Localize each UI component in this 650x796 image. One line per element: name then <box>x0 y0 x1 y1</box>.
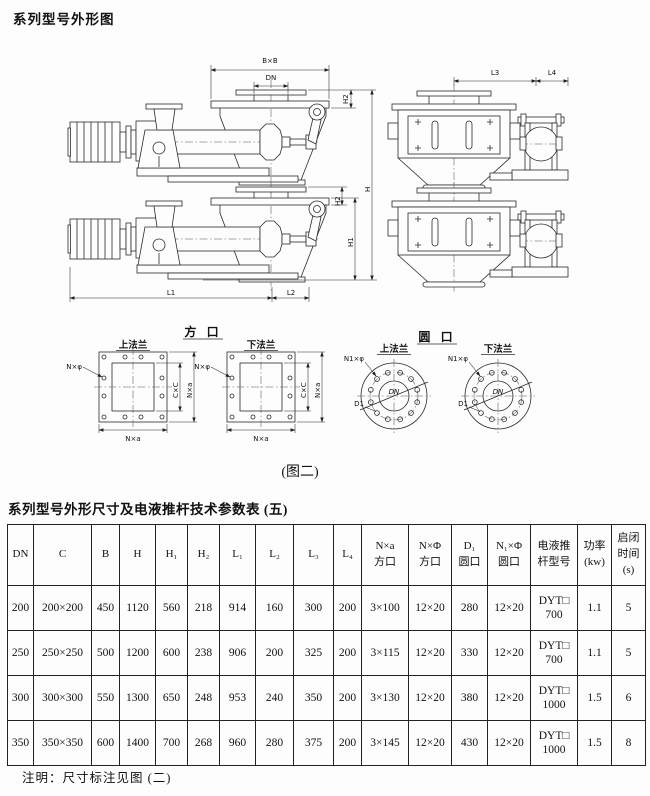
column-header: H₁ <box>156 525 188 586</box>
table-cell: 3×145 <box>362 721 409 766</box>
column-header: N×a 方口 <box>362 525 409 586</box>
table-cell: 238 <box>188 631 220 676</box>
dim-label-d1: D1 <box>458 400 468 408</box>
table-cell: 280 <box>452 586 488 631</box>
table-cell: 12×20 <box>409 721 452 766</box>
lower-flange-label: 下法兰 <box>484 343 513 355</box>
dim-label-l3: L3 <box>491 69 499 77</box>
table-cell: 600 <box>92 721 120 766</box>
table-cell: 1.5 <box>578 676 612 721</box>
table-cell: 430 <box>452 721 488 766</box>
table-cell: 5 <box>612 631 646 676</box>
square-port-title: 方 口 <box>184 324 221 339</box>
column-header: N×Φ 方口 <box>409 525 452 586</box>
column-header: 功率 (kw) <box>578 525 612 586</box>
column-header: C <box>34 525 92 586</box>
table-cell: 1200 <box>120 631 156 676</box>
dim-label-l4: L4 <box>548 69 557 77</box>
dim-label-cxc: C×C <box>172 382 180 398</box>
table-cell: 12×20 <box>409 676 452 721</box>
front-view-upper <box>388 85 568 195</box>
table-cell: 12×20 <box>409 631 452 676</box>
table-cell: 350 <box>294 676 334 721</box>
table-cell: 1.1 <box>578 631 612 676</box>
side-view-lower <box>68 177 329 291</box>
table-cell: 200 <box>8 586 34 631</box>
parameters-table: DNCBHH₁H₂L₁L₂L₃L₄N×a 方口N×Φ 方口D₁ 圆口N₁×Φ 圆… <box>7 524 646 766</box>
dim-label-nxa: N×a <box>125 435 140 443</box>
document-page: 系列型号外形图 <box>0 0 650 796</box>
dim-label-nxa: N×a <box>186 383 194 398</box>
column-header: B <box>92 525 120 586</box>
column-header: D₁ 圆口 <box>452 525 488 586</box>
column-header: 电液推 杆型号 <box>531 525 578 586</box>
table-cell: 300 <box>294 586 334 631</box>
table-cell: 12×20 <box>488 586 531 631</box>
table-cell: 3×115 <box>362 631 409 676</box>
table-cell: 218 <box>188 586 220 631</box>
side-view-upper <box>68 80 329 194</box>
table-cell: 250×250 <box>34 631 92 676</box>
table-cell: 914 <box>220 586 256 631</box>
bolt-count-label: N1×φ <box>448 355 469 363</box>
bolt-count-label: N×φ <box>194 363 210 371</box>
round-port-title: 圆 口 <box>418 330 455 344</box>
column-header: N₁×Φ 圆口 <box>488 525 531 586</box>
table-cell: 200×200 <box>34 586 92 631</box>
table-cell: 280 <box>256 721 294 766</box>
table-cell: 3×130 <box>362 676 409 721</box>
table-cell: 1300 <box>120 676 156 721</box>
table-cell: DYT□ 1000 <box>531 676 578 721</box>
dim-label-nxa: N×a <box>314 383 322 398</box>
column-header: L₄ <box>334 525 362 586</box>
table-cell: 380 <box>452 676 488 721</box>
table-cell: 650 <box>156 676 188 721</box>
table-cell: 250 <box>8 631 34 676</box>
table-cell: 200 <box>256 631 294 676</box>
table-cell: 8 <box>612 721 646 766</box>
table-cell: 550 <box>92 676 120 721</box>
table-cell: DYT□ 700 <box>531 586 578 631</box>
square-flange-lower <box>222 347 300 427</box>
table-cell: DYT□ 700 <box>531 631 578 676</box>
table-cell: 6 <box>612 676 646 721</box>
table-cell: 200 <box>334 586 362 631</box>
column-header: H₂ <box>188 525 220 586</box>
column-header: DN <box>8 525 34 586</box>
table-cell: 350×350 <box>34 721 92 766</box>
table-cell: 330 <box>452 631 488 676</box>
dim-label-bxb: B×B <box>262 57 278 65</box>
table-cell: 560 <box>156 586 188 631</box>
table-cell: 200 <box>334 676 362 721</box>
table-cell: 960 <box>220 721 256 766</box>
outline-drawing: DN B×B DN H2 H2 H1 H L1 L2 <box>0 0 650 490</box>
table-cell: 375 <box>294 721 334 766</box>
table-cell: 906 <box>220 631 256 676</box>
dim-label-h: H <box>364 187 372 192</box>
table-cell: 700 <box>156 721 188 766</box>
bolt-count-label: N1×φ <box>344 355 365 363</box>
table-cell: 248 <box>188 676 220 721</box>
round-flange-lower <box>461 359 535 433</box>
figure-caption: (图二) <box>240 461 360 481</box>
table-title: 系列型号外形尺寸及电液推杆技术参数表 (五) <box>8 498 288 518</box>
table-cell: 600 <box>156 631 188 676</box>
table-cell: 1.5 <box>578 721 612 766</box>
table-cell: 160 <box>256 586 294 631</box>
front-view-lower <box>388 182 568 292</box>
footnote: 注明：尺寸标注见图 (二) <box>22 767 171 786</box>
table-cell: 1400 <box>120 721 156 766</box>
table-row: 250250×25050012006002389062003252003×115… <box>8 631 646 676</box>
table-cell: 240 <box>256 676 294 721</box>
table-cell: 300 <box>8 676 34 721</box>
round-flange-upper <box>357 359 431 433</box>
column-header: L₂ <box>256 525 294 586</box>
table-cell: 300×300 <box>34 676 92 721</box>
table-cell: 268 <box>188 721 220 766</box>
table-cell: 200 <box>334 631 362 676</box>
square-flange-upper <box>94 347 172 427</box>
dim-label-d1: D1 <box>354 400 364 408</box>
table-cell: 5 <box>612 586 646 631</box>
dim-label-l2: L2 <box>287 289 295 297</box>
table-row: 200200×20045011205602189141603002003×100… <box>8 586 646 631</box>
bolt-count-label: N×φ <box>66 363 82 371</box>
table-header-row: DNCBHH₁H₂L₁L₂L₃L₄N×a 方口N×Φ 方口D₁ 圆口N₁×Φ 圆… <box>8 525 646 586</box>
table-cell: 450 <box>92 586 120 631</box>
column-header: L₁ <box>220 525 256 586</box>
table-cell: 12×20 <box>488 721 531 766</box>
table-cell: DYT□ 1000 <box>531 721 578 766</box>
dim-label-dn: DN <box>266 74 277 82</box>
dim-label-h1: H1 <box>347 237 355 247</box>
table-cell: 3×100 <box>362 586 409 631</box>
table-cell: 12×20 <box>488 631 531 676</box>
dim-label-cxc: C×C <box>300 382 308 398</box>
table-cell: 1.1 <box>578 586 612 631</box>
table-row: 300300×30055013006502489532403502003×130… <box>8 676 646 721</box>
table-cell: 1120 <box>120 586 156 631</box>
table-cell: 325 <box>294 631 334 676</box>
column-header: H <box>120 525 156 586</box>
upper-flange-label: 上法兰 <box>380 343 409 355</box>
table-cell: 350 <box>8 721 34 766</box>
table-cell: 500 <box>92 631 120 676</box>
column-header: 启闭 时间 (s) <box>612 525 646 586</box>
dim-label-h2: H2 <box>342 94 350 104</box>
dim-label-nxa: N×a <box>253 435 268 443</box>
table-cell: 12×20 <box>488 676 531 721</box>
table-row: 350350×35060014007002689602803752003×145… <box>8 721 646 766</box>
table-cell: 200 <box>334 721 362 766</box>
column-header: L₃ <box>294 525 334 586</box>
table-cell: 953 <box>220 676 256 721</box>
dim-label-l1: L1 <box>167 289 175 297</box>
table-cell: 12×20 <box>409 586 452 631</box>
